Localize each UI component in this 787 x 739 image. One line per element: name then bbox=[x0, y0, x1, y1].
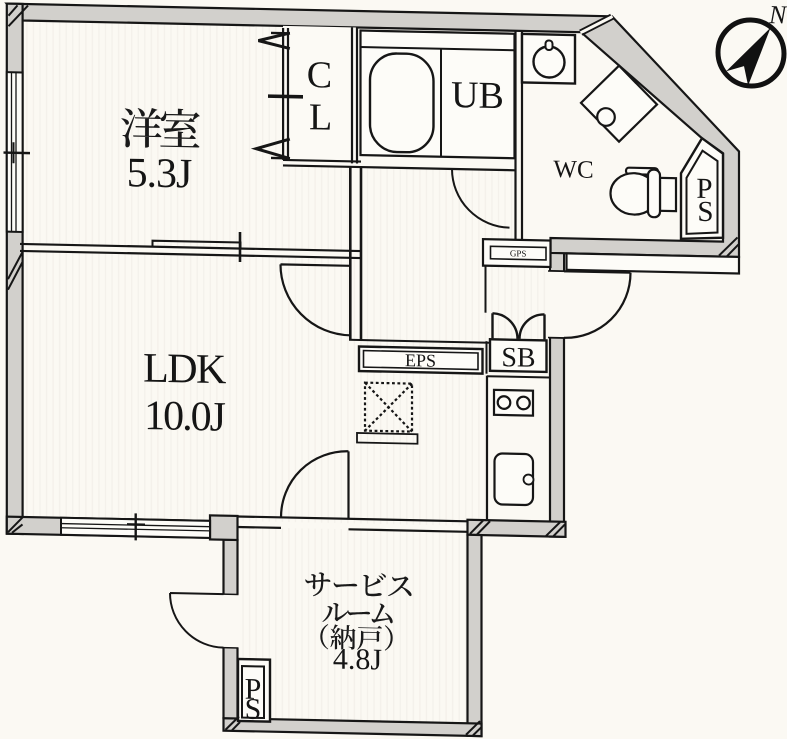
svg-text:GPS: GPS bbox=[510, 248, 527, 258]
svg-text:EPS: EPS bbox=[405, 350, 436, 371]
svg-text:N: N bbox=[768, 0, 787, 29]
svg-text:4.8J: 4.8J bbox=[333, 642, 382, 676]
svg-text:UB: UB bbox=[451, 74, 504, 117]
svg-text:WC: WC bbox=[553, 156, 593, 184]
svg-text:S: S bbox=[245, 693, 262, 726]
svg-text:LDK: LDK bbox=[143, 346, 226, 394]
svg-text:C: C bbox=[307, 54, 332, 97]
svg-text:S: S bbox=[697, 196, 713, 228]
svg-text:L: L bbox=[309, 96, 332, 138]
svg-text:SB: SB bbox=[501, 342, 535, 374]
svg-text:10.0J: 10.0J bbox=[144, 393, 225, 441]
svg-text:5.3J: 5.3J bbox=[127, 150, 192, 197]
